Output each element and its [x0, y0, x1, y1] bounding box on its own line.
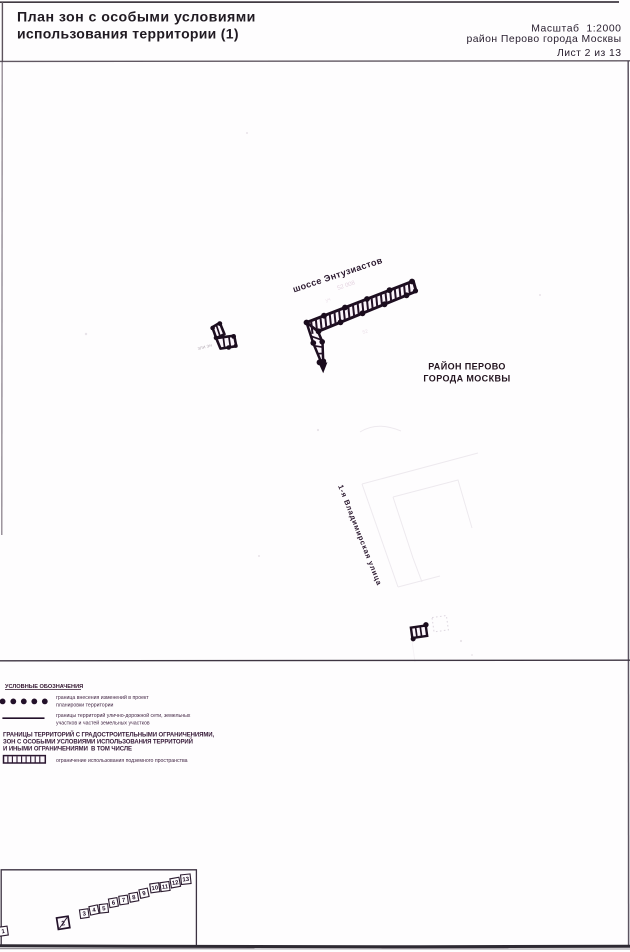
svg-text:планировки территории: планировки территории [56, 703, 113, 709]
svg-text:УСЛОВНЫЕ ОБОЗНАЧЕНИЯ: УСЛОВНЫЕ ОБОЗНАЧЕНИЯ [5, 684, 83, 690]
svg-text:ЗОН С ОСОБЫМИ УСЛОВИЯМИ ИСПОЛЬ: ЗОН С ОСОБЫМИ УСЛОВИЯМИ ИСПОЛЬЗОВАНИЯ ТЕ… [3, 738, 193, 746]
svg-text:ограничение использования подз: ограничение использования подземного про… [56, 758, 188, 764]
svg-text:использования территории (1): использования территории (1) [17, 26, 239, 42]
svg-text:граница внесения изменений в п: граница внесения изменений в проект [56, 694, 149, 701]
svg-text:И ИНЫМИ ОГРАНИЧЕНИЯМИ В ТОМ Ч: И ИНЫМИ ОГРАНИЧЕНИЯМИ В ТОМ ЧИСЛЕ [3, 747, 132, 753]
svg-text:Лист 2 из 13: Лист 2 из 13 [557, 48, 622, 59]
svg-text:РАЙОН ПЕРОВО: РАЙОН ПЕРОВО [428, 361, 506, 372]
svg-text:13: 13 [182, 877, 190, 884]
svg-text:границы территорий улично-доро: границы территорий улично-дорожной сети,… [56, 712, 191, 719]
svg-text:район Перово города Москвы: район Перово города Москвы [466, 34, 621, 45]
svg-text:ГОРОДА МОСКВЫ: ГОРОДА МОСКВЫ [423, 373, 510, 383]
svg-text:ГРАНИЦЫ ТЕРРИТОРИЙ С ГРАДОСТРО: ГРАНИЦЫ ТЕРРИТОРИЙ С ГРАДОСТРОИТЕЛЬНЫМИ … [3, 731, 215, 739]
svg-text:участков и частей земельных уч: участков и частей земельных участков [56, 719, 150, 726]
svg-text:План зон с особыми условиями: План зон с особыми условиями [17, 9, 256, 25]
svg-text:Масштаб 1:2000: Масштаб 1:2000 [531, 23, 621, 35]
